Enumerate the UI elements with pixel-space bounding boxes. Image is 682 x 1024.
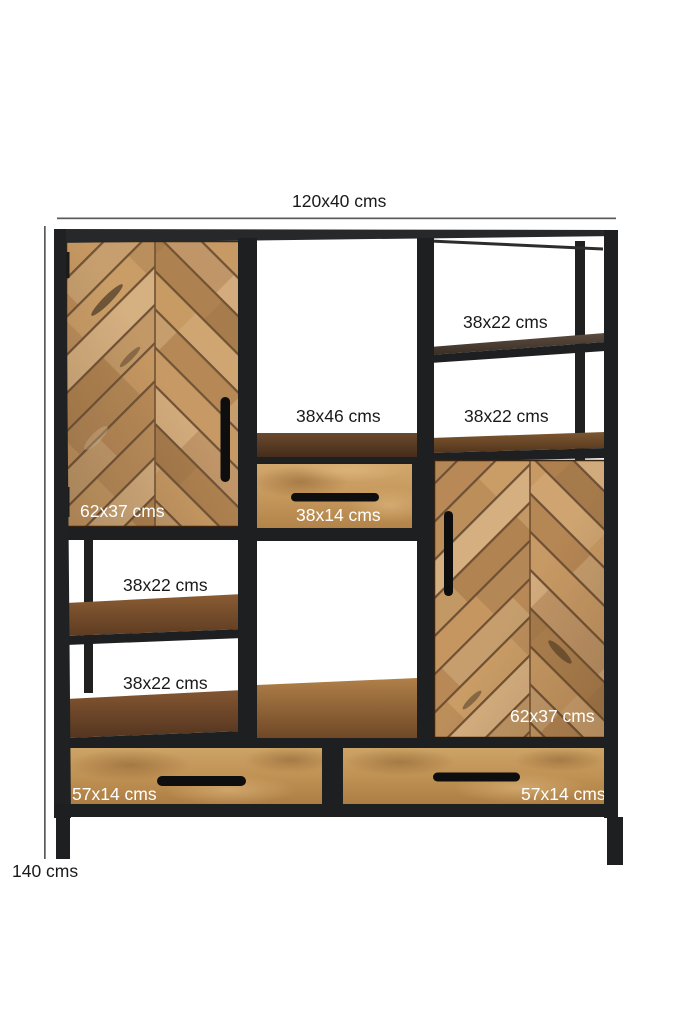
svg-text:62x37 cms: 62x37 cms — [510, 706, 595, 726]
svg-text:57x14 cms: 57x14 cms — [521, 784, 606, 804]
svg-text:38x22 cms: 38x22 cms — [463, 312, 548, 332]
svg-text:38x46 cms: 38x46 cms — [296, 406, 381, 426]
svg-text:57x14 cms: 57x14 cms — [72, 784, 157, 804]
svg-text:38x22 cms: 38x22 cms — [123, 673, 208, 693]
svg-text:120x40 cms: 120x40 cms — [292, 191, 387, 211]
svg-text:38x22 cms: 38x22 cms — [464, 406, 549, 426]
svg-text:62x37 cms: 62x37 cms — [80, 501, 165, 521]
svg-text:140 cms: 140 cms — [12, 861, 78, 881]
svg-text:38x22 cms: 38x22 cms — [123, 575, 208, 595]
svg-text:38x14 cms: 38x14 cms — [296, 505, 381, 525]
